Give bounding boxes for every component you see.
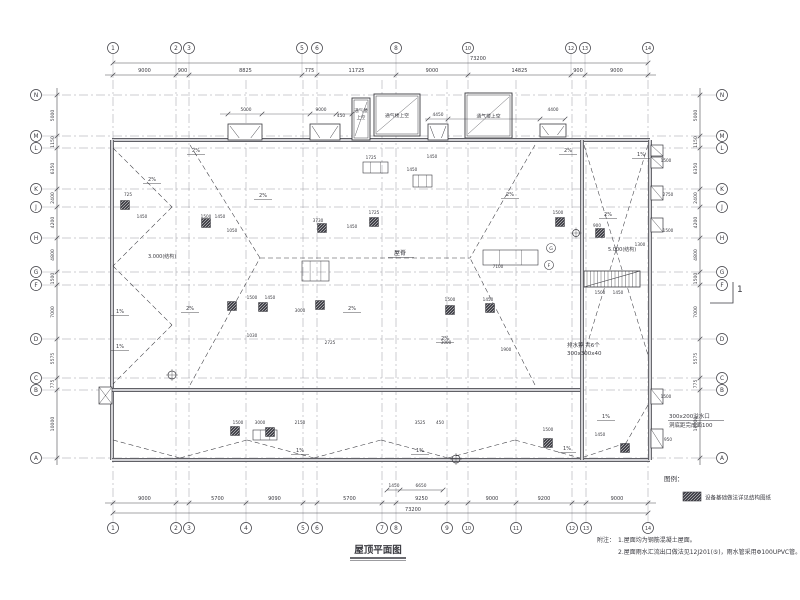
- roof-valley-line: [190, 145, 260, 258]
- micro-dim-text: 1450: [407, 167, 418, 172]
- grid-bubble-label: A: [34, 456, 38, 462]
- dim-text: 9000: [486, 496, 499, 502]
- dim-text: 5700: [343, 496, 356, 502]
- equipment-pad: [486, 304, 495, 313]
- dim-text: 4800: [50, 249, 56, 261]
- micro-dim-text: 1500: [661, 158, 672, 163]
- micro-dim-text: 2150: [295, 420, 306, 425]
- roof-valley-line: [626, 405, 648, 443]
- dim-text: 1500: [693, 273, 699, 285]
- roof-valley-line: [314, 440, 381, 458]
- overflow-label-2: 洞底距完成面100: [669, 421, 713, 429]
- parapet-vent: [540, 124, 566, 137]
- grid-bubble-label: 12: [568, 46, 574, 52]
- drain-grate-label-2: 300x300x40: [567, 351, 602, 357]
- micro-dim-text: 1500: [543, 427, 554, 432]
- inner-grid-bubble-label: G: [549, 246, 553, 252]
- parapet-vent: [428, 124, 448, 140]
- roof-valley-line: [381, 440, 448, 458]
- roof-valley-line: [113, 440, 180, 458]
- vent-label: 通气楼上空: [477, 113, 501, 120]
- equipment-pad: [202, 219, 211, 228]
- equipment-pad: [446, 306, 455, 315]
- roof-plan-drawing: 1235681012131490009008825775117259000148…: [0, 0, 800, 600]
- grid-bubble-label: 12: [569, 526, 575, 532]
- equipment-pad: [370, 218, 379, 227]
- micro-dim-text: 1500: [663, 228, 674, 233]
- roof-valley-line: [113, 266, 172, 325]
- dim-text: 775: [305, 68, 315, 74]
- grid-bubble-label: D: [34, 337, 39, 343]
- vent-label-line: 通气楼: [354, 107, 368, 114]
- grid-bubble-label: 7: [380, 526, 384, 532]
- grid-bubble-label: G: [34, 270, 39, 276]
- grid-bubble-label: M: [33, 134, 38, 140]
- equipment-pad: [259, 303, 268, 312]
- equipment-pad: [556, 218, 565, 227]
- slope-label: 2%: [348, 306, 356, 312]
- grid-bubble-label: A: [720, 456, 724, 462]
- grid-bubble-label: 1: [111, 526, 115, 532]
- roof-valley-line: [584, 443, 626, 457]
- ridge-label: 屋脊: [394, 249, 406, 257]
- micro-dim-text: 1500: [553, 210, 564, 215]
- slope-label: 1%: [602, 414, 610, 420]
- dim-text: 6350: [50, 163, 56, 175]
- drawing-sheet: 1235681012131490009008825775117259000148…: [0, 0, 800, 600]
- slope-label: 2%: [192, 148, 200, 154]
- grid-bubble-label: K: [720, 187, 724, 193]
- equipment-pad: [266, 428, 275, 437]
- grid-bubble-label: 10: [465, 46, 471, 52]
- grid-bubble-label: K: [34, 187, 38, 193]
- micro-dim-text: 1450: [215, 214, 226, 219]
- micro-dim-text: 3730: [313, 218, 324, 223]
- grid-bubble-label: 5: [301, 526, 305, 532]
- dim-text: 9000: [426, 68, 439, 74]
- dim-text: 7000: [50, 306, 56, 318]
- grid-bubble-label: H: [720, 236, 724, 242]
- micro-dim-text: 950: [664, 437, 672, 442]
- grid-bubble-label: 11: [513, 526, 519, 532]
- elevation-label-2: 5.000(结构): [608, 246, 636, 253]
- grid-bubble-label: M: [719, 134, 724, 140]
- dim-text: 6350: [693, 163, 699, 175]
- dim-text-overall: 73200: [470, 56, 486, 62]
- grid-bubble-label: B: [34, 388, 38, 394]
- grid-bubble-label: 10: [465, 526, 471, 532]
- dim-text: 2400: [50, 192, 56, 204]
- grid-bubble-label: 13: [582, 46, 588, 52]
- equipment-pad: [231, 427, 240, 436]
- equipment-outline: [363, 162, 388, 173]
- parapet-vent: [310, 124, 340, 140]
- dim-text: 5575: [50, 353, 56, 365]
- dim-text: 900: [178, 68, 188, 74]
- equipment-pad: [121, 201, 130, 210]
- equipment-pad: [621, 444, 630, 453]
- micro-dim-text: 1450: [483, 297, 494, 302]
- drawing-title: 屋顶平面图: [354, 545, 402, 556]
- dim-text: 5000: [241, 107, 252, 113]
- grid-bubble-label: G: [720, 270, 725, 276]
- roof-valley-line: [113, 325, 172, 384]
- grid-bubble-label: 1: [111, 46, 115, 52]
- dim-text: 450: [337, 113, 345, 119]
- dim-text: 5000: [693, 110, 699, 122]
- legend: 图例： 设备基础做法详见结构图纸: [664, 474, 772, 502]
- dim-text: 775: [50, 380, 56, 389]
- dim-text: 4400: [548, 107, 559, 113]
- roof-valley-line: [616, 145, 648, 250]
- slope-label: 1%: [637, 152, 645, 158]
- dim-text: 1500: [50, 273, 56, 285]
- grid-bubble-label: 6: [315, 46, 319, 52]
- micro-dim-text: 1450: [595, 432, 606, 437]
- grid-bubble-label: 8: [394, 526, 398, 532]
- dim-text: 9200: [538, 496, 551, 502]
- dim-text: 9250: [415, 496, 428, 502]
- grid-bubble-label: J: [720, 205, 723, 211]
- dim-text: 4200: [693, 217, 699, 229]
- dim-text: 7000: [693, 306, 699, 318]
- dim-text: 1150: [693, 136, 699, 148]
- grid-bubble-label: C: [34, 376, 38, 382]
- dim-text: 900: [573, 68, 583, 74]
- grid-bubble-label: 4: [244, 526, 248, 532]
- slope-label: 1%: [563, 446, 571, 452]
- dim-text: 5000: [50, 110, 56, 122]
- equipment-outline: [302, 261, 329, 281]
- slope-label: 1%: [116, 344, 124, 350]
- dim-text: 9000: [138, 496, 151, 502]
- micro-dim-text: 1030: [247, 333, 258, 338]
- dim-text: 11725: [349, 68, 365, 74]
- micro-dim-text: 1500: [201, 214, 212, 219]
- equipment-pad: [316, 301, 325, 310]
- slope-label: 2%: [186, 306, 194, 312]
- equipment-pad: [318, 224, 327, 233]
- roof-slope-lines: [113, 145, 648, 458]
- equipment-pad: [228, 302, 237, 311]
- grid-bubble-label: 5: [300, 46, 304, 52]
- grid-bubble-label: 3: [187, 526, 191, 532]
- dim-text: 4800: [693, 249, 699, 261]
- dim-text: 9000: [138, 68, 151, 74]
- grid-bubble-label: 9: [445, 526, 449, 532]
- grid-bubble-label: 3: [187, 46, 191, 52]
- grid-bubble-label: D: [720, 337, 725, 343]
- dim-text: 4200: [50, 217, 56, 229]
- dim-text: 9000: [316, 107, 327, 113]
- building-walls: [110, 138, 651, 461]
- micro-dim-text: 1725: [366, 155, 377, 160]
- dim-text: 9090: [268, 496, 281, 502]
- legend-item-label: 设备基础做法详见结构图纸: [705, 494, 772, 502]
- legend-hatch-swatch: [683, 492, 701, 501]
- dim-text: 5700: [211, 496, 224, 502]
- roof-valley-line: [190, 258, 260, 385]
- dim-text: 8825: [239, 68, 252, 74]
- note-line-2: 2.屋面雨水汇流出口做法见12J201(⑤)，雨水管采用Φ100UPVC管。: [618, 548, 800, 556]
- roof-equipment: [99, 93, 663, 465]
- dim-text-overall: 73200: [405, 507, 421, 513]
- micro-dim-text: 1450: [427, 154, 438, 159]
- grid-bubble-label: 2: [174, 526, 178, 532]
- micro-dim-text: 3000: [441, 340, 452, 345]
- micro-dim-text: 1900: [501, 347, 512, 352]
- dim-text: 9000: [610, 68, 623, 74]
- elevation-label-1: 3.000(结构): [148, 253, 176, 260]
- drain-grate-label-1: 排水箅 共6个: [567, 341, 600, 349]
- slope-label: 2%: [564, 148, 572, 154]
- grid-bubble-label: B: [720, 388, 724, 394]
- micro-dim-text: 1450: [265, 295, 276, 300]
- micro-dim-text: 1500: [661, 394, 672, 399]
- micro-dim-text: 1500: [595, 290, 606, 295]
- micro-dim-text: 2750: [663, 192, 674, 197]
- grid-bubble-label: 14: [645, 46, 651, 52]
- roof-valley-line: [470, 258, 535, 385]
- grid-bubble-label: H: [34, 236, 38, 242]
- dim-text: 1450: [389, 483, 400, 489]
- grid-bubble-label: 6: [315, 526, 319, 532]
- slope-label: 1%: [296, 448, 304, 454]
- grid-bubble-label: F: [720, 283, 723, 289]
- dim-text: 1150: [50, 136, 56, 148]
- slope-label: 1%: [416, 448, 424, 454]
- note-line-1: 1.屋面均为钢筋混凝土屋面。: [618, 536, 696, 544]
- slope-label: 2%: [604, 212, 612, 218]
- equipment-pad: [596, 229, 605, 238]
- grid-bubble-label: F: [34, 283, 37, 289]
- vent-label-line: 上空: [357, 114, 366, 121]
- grid-bubble-label: 14: [645, 526, 651, 532]
- micro-dim-text: 725: [124, 192, 132, 197]
- micro-dim-text: 1500: [233, 420, 244, 425]
- grid-bubble-label: N: [720, 93, 724, 99]
- micro-dim-text: 900: [593, 223, 601, 228]
- micro-dim-text: 3000: [295, 308, 306, 313]
- micro-dim-text: 1450: [613, 290, 624, 295]
- equipment-outline: [483, 250, 538, 265]
- grid-bubble-label: N: [34, 93, 38, 99]
- roof-valley-line: [470, 145, 535, 258]
- slope-label: 1%: [116, 309, 124, 315]
- micro-dim-text: 1050: [227, 228, 238, 233]
- micro-dim-text: 3525: [415, 420, 426, 425]
- slope-label: 2%: [148, 177, 156, 183]
- roof-valley-line: [113, 148, 172, 207]
- slope-label: 2%: [259, 193, 267, 199]
- micro-dim-text: 1725: [369, 210, 380, 215]
- dim-text: 9000: [611, 496, 624, 502]
- parapet-vent: [228, 124, 262, 140]
- notes: 附注： 1.屋面均为钢筋混凝土屋面。 2.屋面雨水汇流出口做法见12J201(⑤…: [597, 536, 800, 556]
- dim-text: 14825: [512, 68, 528, 74]
- dim-text: 2400: [693, 192, 699, 204]
- micro-dim-text: 1500: [445, 297, 456, 302]
- grid-bubble-label: J: [34, 205, 37, 211]
- section-marker-label: 1: [737, 285, 743, 295]
- micro-dim-text: 7100: [493, 264, 504, 269]
- grid-bubble-label: 8: [394, 46, 398, 52]
- micro-dim-text: 1300: [635, 242, 646, 247]
- equipment-pad: [544, 439, 553, 448]
- roof-valley-line: [180, 440, 247, 458]
- grid-bubble-label: C: [720, 376, 724, 382]
- dim-text: 6650: [416, 483, 427, 489]
- dim-text: 4450: [433, 112, 444, 118]
- micro-dim-text: 450: [436, 420, 444, 425]
- inner-grid-bubble-label: F: [548, 263, 551, 269]
- notes-heading: 附注：: [597, 536, 615, 544]
- micro-dim-text: 1450: [137, 214, 148, 219]
- title-block: 屋顶平面图: [350, 545, 406, 561]
- micro-dim-text: 1500: [247, 295, 258, 300]
- micro-dim-text: 3000: [255, 420, 266, 425]
- equipment-outline: [413, 175, 432, 187]
- dim-text: 10000: [50, 417, 56, 432]
- slope-label: 2%: [506, 192, 514, 198]
- vent-label: 通气楼上空: [385, 112, 409, 119]
- micro-dim-text: 1450: [347, 224, 358, 229]
- dim-text: 775: [693, 380, 699, 389]
- grid-bubble-label: 13: [583, 526, 589, 532]
- micro-dim-text: 2725: [325, 340, 336, 345]
- grid-bubble-label: 2: [174, 46, 178, 52]
- overflow-label-1: 300x200溢水口: [669, 412, 710, 420]
- dim-text: 5575: [693, 353, 699, 365]
- legend-heading: 图例：: [664, 474, 684, 483]
